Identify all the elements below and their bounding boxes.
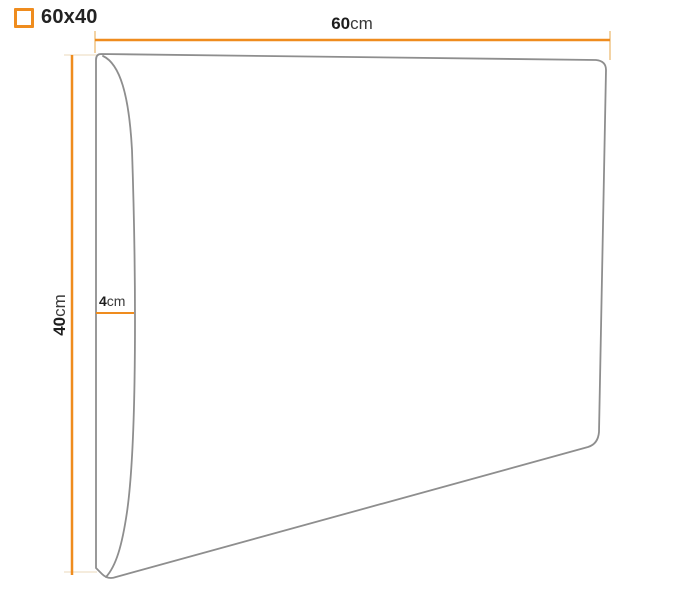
height-value: 40 (50, 317, 70, 336)
depth-unit: cm (107, 293, 126, 309)
depth-value: 4 (99, 293, 107, 309)
diagram-canvas: 60x40 60cm 40cm 4cm (0, 0, 682, 610)
width-unit: cm (350, 14, 373, 33)
height-unit: cm (50, 294, 70, 317)
width-value: 60 (331, 14, 350, 33)
panel-outline (96, 54, 606, 578)
width-dimension-label: 60cm (252, 14, 452, 34)
height-dimension-label: 40cm (48, 265, 72, 365)
depth-dimension-label: 4cm (99, 293, 125, 309)
